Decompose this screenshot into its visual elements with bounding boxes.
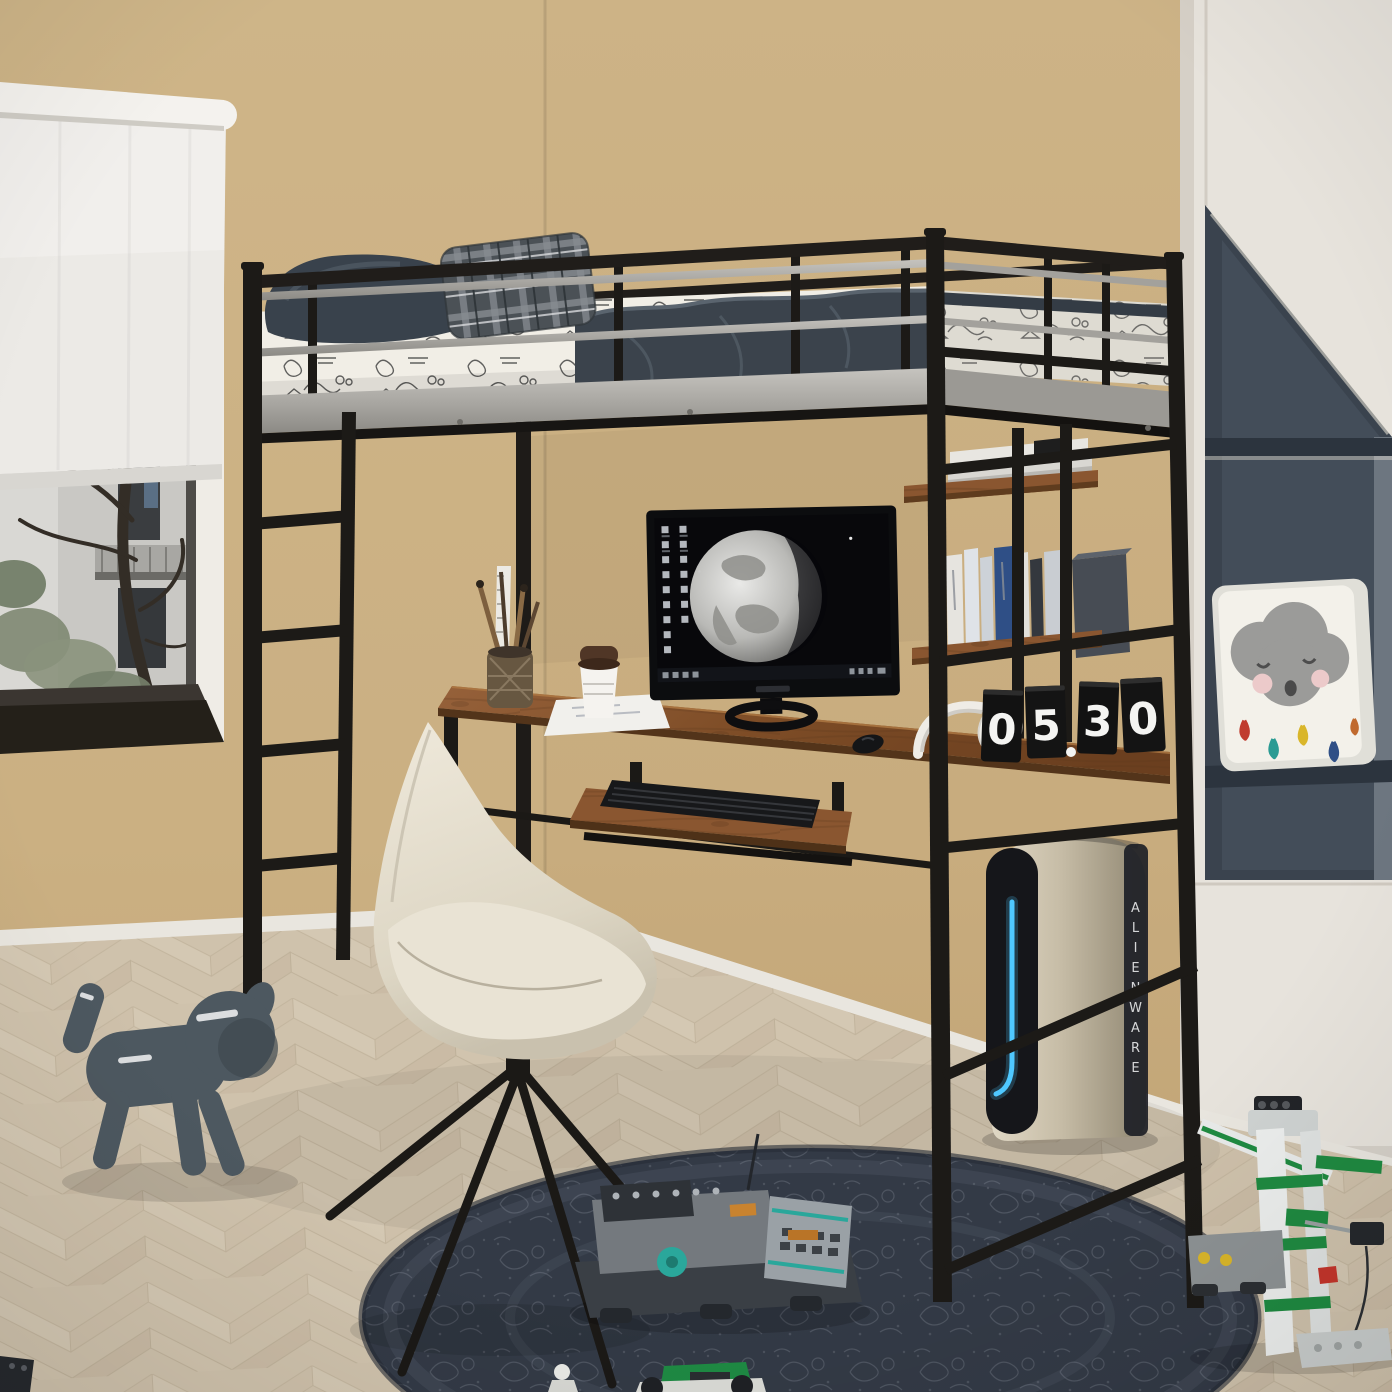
bedroom-photo: 0 5 3 0 ALIENWARE (0, 0, 1392, 1392)
vignette (0, 0, 1392, 1392)
